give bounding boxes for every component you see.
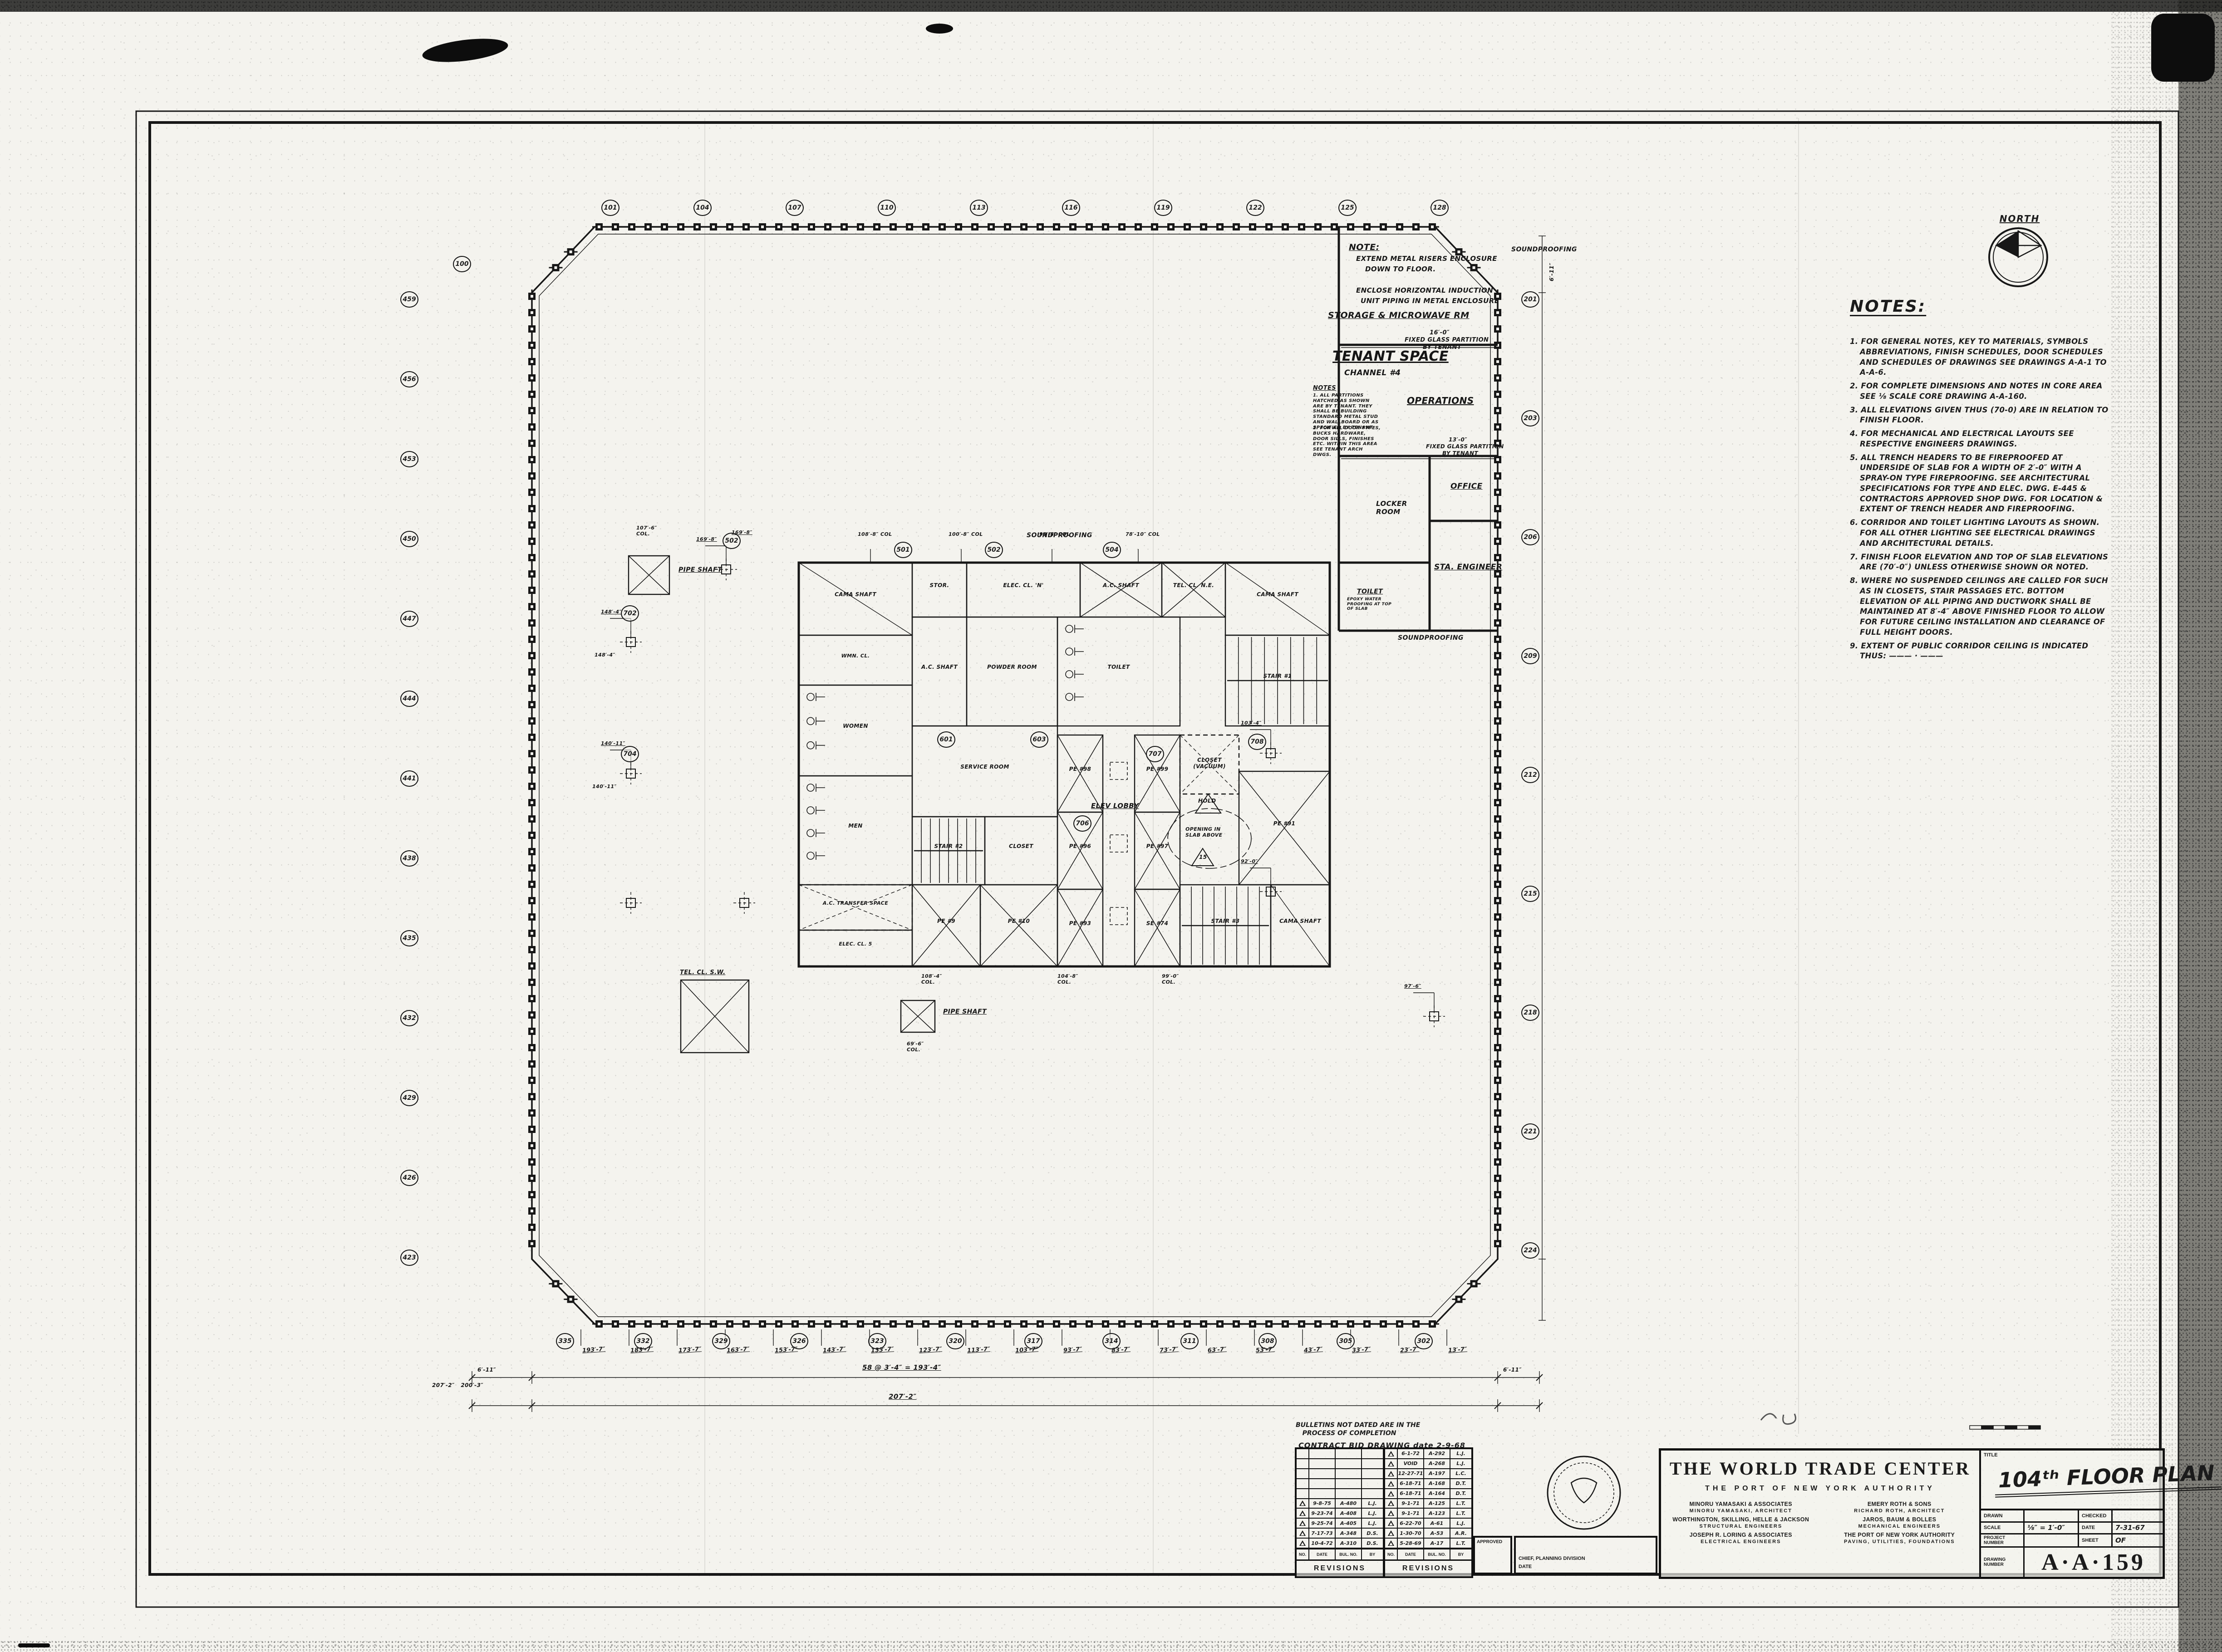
title-block: THE WORLD TRADE CENTER THE PORT OF NEW Y… [1659, 1448, 2165, 1579]
plan-annotation: 140′-11″ [592, 784, 617, 790]
rev-by: L.C. [1450, 1469, 1471, 1478]
column-core-dot [1496, 1210, 1499, 1212]
wc-fixture [807, 807, 814, 814]
room-wmn-cl- [799, 635, 912, 685]
column-core-dot [908, 225, 911, 228]
rev-no [1297, 1459, 1309, 1468]
column-core-dot [1121, 225, 1123, 228]
column-dim-label: 97′-6″ [1404, 984, 1421, 990]
project-number-value [2025, 1534, 2079, 1546]
column-core-dot [1496, 360, 1499, 363]
column-core-dot [892, 1323, 895, 1325]
room-label: PE #10 [982, 918, 1056, 924]
column-core-dot [1055, 225, 1058, 228]
column-bubble: 209 [1521, 648, 1539, 664]
column-core-dot [531, 1014, 533, 1016]
column-core-dot [941, 225, 944, 228]
firm-entry: THE PORT OF NEW YORK AUTHORITYPAVING, UT… [1824, 1532, 1975, 1544]
column-core-dot [531, 426, 533, 428]
shaft-diagonal [1225, 563, 1330, 635]
room-label: PE #98 [1059, 766, 1101, 772]
rev-no [1297, 1529, 1309, 1538]
rev-bulletin: A-480 [1336, 1499, 1362, 1508]
plan-annotation: EPOXY WATER PROOFING AT TOP OF SLAB [1347, 597, 1395, 612]
note-item: 8. WHERE NO SUSPENDED CEILINGS ARE CALLE… [1850, 576, 2111, 638]
drawn-label: DRAWN [1981, 1510, 2025, 1521]
column-core-dot [843, 225, 846, 228]
column-bubble: 335 [556, 1333, 574, 1349]
column-core-dot [531, 883, 533, 886]
column-core-dot [1104, 225, 1107, 228]
column-core-dot [1496, 997, 1499, 1000]
column-core-dot [1496, 1030, 1499, 1033]
scale-label: SCALE [1981, 1523, 2025, 1534]
column-core-dot [1496, 932, 1499, 935]
revision-row: 7-17-73A-348D.S. [1297, 1529, 1383, 1539]
dim-end-right: 6′-11″ [1503, 1367, 1522, 1373]
column-core-dot [1398, 1323, 1401, 1325]
column-core-dot [531, 769, 533, 771]
revision-triangle-icon [1388, 1510, 1394, 1516]
plan-annotation: FIXED GLASS PARTITION [1426, 443, 1504, 450]
room-label: STAIR #2 [914, 843, 983, 849]
column-core-dot [1496, 475, 1499, 477]
revision-row: 1-30-70A-53A.R. [1385, 1529, 1471, 1539]
column-core-dot [663, 225, 666, 228]
column-core-dot [554, 266, 557, 269]
column-bubble: 203 [1521, 410, 1539, 426]
column-core-dot [647, 225, 649, 228]
column-dim-label: 148′-4″ [601, 609, 622, 615]
rev-no [1385, 1469, 1398, 1478]
column-core-dot [1496, 671, 1499, 673]
rev-by [1362, 1459, 1383, 1468]
rev-no [1385, 1459, 1398, 1468]
column-core-dot [843, 1323, 846, 1325]
room-a-c-shaft [912, 617, 967, 726]
column-core-dot [728, 1323, 731, 1325]
column-core-dot [598, 1323, 600, 1325]
revision-row: 6-18-71A-168D.T. [1385, 1479, 1471, 1489]
general-notes: NOTES: 1. FOR GENERAL NOTES, KEY TO MATE… [1850, 297, 2111, 665]
column-core-dot [1457, 1298, 1460, 1301]
column-core-dot [1235, 225, 1238, 228]
chief-date-label: DATE [1519, 1564, 1653, 1569]
column-core-dot [531, 1144, 533, 1147]
note-item: 1. FOR GENERAL NOTES, KEY TO MATERIALS, … [1850, 337, 2111, 378]
wc-fixture [1066, 671, 1073, 678]
room-label: CLOSET (VACUUM) [1182, 757, 1237, 770]
rev-date: 5-28-69 [1398, 1539, 1424, 1548]
revision-row [1297, 1449, 1383, 1459]
column-core-dot [1137, 225, 1140, 228]
column-bubble: 104 [693, 200, 712, 216]
column-core-dot [1153, 225, 1156, 228]
column-bubble: 707 [1146, 746, 1164, 762]
column-core-dot [1284, 225, 1287, 228]
room-label: TOILET [1059, 664, 1178, 670]
column-core-dot [630, 1323, 633, 1325]
plan-annotation: 108′-4″ COL. [921, 974, 942, 985]
column-core-dot [1366, 225, 1368, 228]
note-item: 7. FINISH FLOOR ELEVATION AND TOP OF SLA… [1850, 552, 2111, 573]
lobby-dashed-column [1110, 907, 1127, 925]
column-core-dot [531, 377, 533, 379]
plan-annotation: FIXED GLASS PARTITION [1405, 337, 1489, 343]
rev-by: L.T. [1450, 1499, 1471, 1508]
column-core-dot [531, 1063, 533, 1065]
rev-date [1309, 1479, 1336, 1488]
plan-annotation: UNIT PIPING IN METAL ENCLOSURE [1361, 297, 1499, 305]
column-core-dot [1023, 1323, 1025, 1325]
column-core-dot [531, 1046, 533, 1049]
column-core-dot [531, 1161, 533, 1163]
column-bubble: 426 [400, 1170, 418, 1186]
revision-row: 6-1-72A-292L.J. [1385, 1449, 1471, 1459]
column-bubble: 504 [1103, 542, 1121, 558]
column-core-dot [1415, 225, 1417, 228]
rev-no [1385, 1499, 1398, 1508]
rev-by: L.J. [1450, 1459, 1471, 1468]
rev-by: D.S. [1362, 1539, 1383, 1548]
firm-name: JAROS, BAUM & BOLLES [1824, 1516, 1975, 1523]
column-bubble: 311 [1180, 1333, 1199, 1349]
column-core-dot [531, 295, 533, 298]
drawing-title-box: TITLE 104ᵗʰ FLOOR PLAN [1981, 1451, 2163, 1510]
rev-date: 1-30-70 [1398, 1529, 1424, 1538]
column-core-dot [1496, 556, 1499, 559]
column-core-dot [1349, 1323, 1352, 1325]
column-core-dot [531, 899, 533, 902]
graphic-scale-bar [1970, 1426, 1981, 1429]
column-core-dot [531, 916, 533, 918]
dim-right-end: 6′-11″ [1549, 263, 1555, 281]
column-core-dot [777, 225, 780, 228]
column-core-dot [679, 225, 682, 228]
column-dim-label: 103′-4″ [1241, 721, 1262, 726]
column-core-dot [1333, 225, 1336, 228]
column-core-dot [1496, 1046, 1499, 1049]
rev-by: A.R. [1450, 1529, 1471, 1538]
notes-title: NOTES: [1850, 297, 2111, 316]
column-core-dot [531, 1242, 533, 1245]
column-core-dot [531, 867, 533, 869]
rev-bulletin [1336, 1449, 1362, 1458]
rev-date: 9-25-74 [1309, 1519, 1336, 1528]
column-bubble: 101 [601, 200, 619, 216]
north-arrow-block: NORTH [1990, 213, 2049, 224]
approved-label: APPROVED [1477, 1539, 1502, 1544]
column-core-dot [761, 1323, 764, 1325]
room-label: PE #97 [1136, 843, 1178, 849]
column-core-dot [1268, 225, 1270, 228]
revision-triangle-icon [1388, 1491, 1394, 1496]
plan-annotation: PIPE SHAFT [943, 1008, 987, 1016]
wc-fixture [1066, 625, 1073, 632]
column-core-dot [1496, 377, 1499, 379]
column-core-dot [696, 1323, 698, 1325]
column-core-dot [712, 225, 715, 228]
column-core-dot [1473, 1282, 1475, 1285]
rev-by: L.J. [1450, 1449, 1471, 1458]
column-bubble: 459 [400, 291, 418, 308]
plan-annotation: 16′-0″ [1430, 329, 1450, 336]
rev-no [1385, 1479, 1398, 1488]
column-core-dot [973, 225, 976, 228]
column-core-dot [531, 360, 533, 363]
plan-annotation: 99′-0″ COL. [1162, 974, 1179, 985]
column-core-dot [531, 540, 533, 543]
rev-date: 9-8-75 [1309, 1499, 1336, 1508]
room-label: POWDER ROOM [968, 664, 1056, 670]
column-core-dot [1496, 981, 1499, 984]
column-core-dot [1496, 458, 1499, 461]
column-core-dot [531, 997, 533, 1000]
plan-annotation: TEL. CL. S.W. [680, 969, 725, 976]
rev-bulletin [1336, 1459, 1362, 1468]
column-core-dot [892, 225, 895, 228]
column-core-dot [531, 556, 533, 559]
column-core-dot [531, 524, 533, 526]
handwritten-smudge [1761, 1414, 1795, 1424]
revisions-caption: REVISIONS [1297, 1559, 1383, 1576]
title-field-label: TITLE [1984, 1452, 1998, 1458]
graphic-scale-bar [2017, 1426, 2029, 1429]
column-core-dot [1137, 1323, 1140, 1325]
revision-triangle-icon [1388, 1481, 1394, 1486]
column-core-dot [1170, 1323, 1172, 1325]
column-core-dot [826, 225, 829, 228]
rev-by [1362, 1449, 1383, 1458]
firm-name: WORTHINGTON, SKILLING, HELLE & JACKSON [1666, 1516, 1816, 1523]
column-core-dot [1496, 393, 1499, 396]
lobby-dashed-column [1110, 835, 1127, 852]
column-core-dot [1496, 948, 1499, 951]
plan-annotation: BY TENANT [1442, 450, 1478, 456]
column-core-dot [531, 328, 533, 330]
column-core-dot [810, 225, 813, 228]
firm-name: THE PORT OF NEW YORK AUTHORITY [1824, 1532, 1975, 1538]
room-label-elev-lobby: ELEV LOBBY [1091, 802, 1139, 810]
column-bubble: 119 [1154, 200, 1172, 216]
plan-annotation: 69′-6″ COL. [907, 1041, 924, 1053]
rev-bulletin: A-310 [1336, 1539, 1362, 1548]
rev-bulletin: A-292 [1424, 1449, 1450, 1458]
column-core-dot [924, 225, 927, 228]
plan-annotation: SOUNDPROOFING [1511, 246, 1577, 254]
plan-annotation: 13′-0″ [1449, 436, 1467, 443]
architect-seal [1548, 1456, 1620, 1529]
column-core-dot [531, 965, 533, 967]
revision-triangle-icon [1299, 1520, 1306, 1526]
rev-no [1385, 1509, 1398, 1518]
column-core-dot [531, 818, 533, 820]
dim-subtotals: 207′-2″ 200′-3″ [432, 1382, 483, 1388]
column-core-dot [630, 225, 633, 228]
firm-entry: EMERY ROTH & SONSRICHARD ROTH, ARCHITECT [1824, 1501, 1975, 1514]
column-core-dot [1496, 720, 1499, 722]
rev-by: L.T. [1450, 1539, 1471, 1548]
column-core-dot [531, 1177, 533, 1180]
room-label: PE #91 [1241, 820, 1328, 827]
revisions-table-left: 9-8-75A-480L.J.9-23-74A-408L.J.9-25-74A-… [1295, 1447, 1385, 1578]
project-title: THE WORLD TRADE CENTER [1666, 1458, 1975, 1479]
column-core-dot [1121, 1323, 1123, 1325]
column-bubble: 601 [937, 731, 955, 748]
column-core-dot [1496, 752, 1499, 755]
client-name: THE PORT OF NEW YORK AUTHORITY [1666, 1485, 1975, 1493]
rev-bulletin: A-408 [1336, 1509, 1362, 1518]
rev-by: L.J. [1362, 1509, 1383, 1518]
column-core-dot [531, 654, 533, 657]
column-bubble: 704 [621, 746, 639, 762]
column-core-dot [531, 491, 533, 494]
column-core-dot [647, 1323, 649, 1325]
column-core-dot [1496, 687, 1499, 690]
firm-role: RICHARD ROTH, ARCHITECT [1824, 1508, 1975, 1514]
column-core-dot [1496, 1128, 1499, 1131]
column-core-dot [1496, 1112, 1499, 1114]
wc-fixture [807, 693, 814, 701]
revision-row [1297, 1469, 1383, 1479]
column-core-dot [1251, 225, 1254, 228]
title-block-fields: TITLE 104ᵗʰ FLOOR PLAN DRAWN CHECKED SCA… [1981, 1451, 2163, 1577]
column-core-dot [531, 703, 533, 706]
rev-no [1385, 1529, 1398, 1538]
column-core-dot [1072, 1323, 1074, 1325]
column-bubble: 116 [1062, 200, 1080, 216]
column-dim-label: 140′-11″ [601, 741, 625, 747]
notes-list: 1. FOR GENERAL NOTES, KEY TO MATERIALS, … [1850, 337, 2111, 662]
column-core-dot [1317, 1323, 1319, 1325]
revision-triangle-icon [1388, 1461, 1394, 1466]
shaft-diagonal [1271, 885, 1330, 966]
column-core-dot [1088, 1323, 1091, 1325]
column-bubble: 215 [1521, 886, 1539, 902]
firm-entry: JAROS, BAUM & BOLLESMECHANICAL ENGINEERS [1824, 1516, 1975, 1529]
column-core-dot [1104, 1323, 1107, 1325]
column-core-dot [990, 225, 993, 228]
revision-row: 6-18-71A-164D.T. [1385, 1489, 1471, 1499]
revision-triangle-icon [1388, 1471, 1394, 1476]
column-core-dot [1496, 850, 1499, 853]
column-core-dot [1496, 573, 1499, 575]
column-core-dot [570, 250, 572, 253]
scale-value: ⅛″ = 1′-0″ [2025, 1523, 2079, 1534]
column-core-dot [531, 311, 533, 314]
column-core-dot [1496, 540, 1499, 543]
column-core-dot [1039, 225, 1042, 228]
room-label: STAIR #1 [1227, 673, 1328, 679]
column-core-dot [1496, 899, 1499, 902]
column-core-dot [531, 589, 533, 592]
revision-row [1297, 1479, 1383, 1489]
bottom-column-station: 93′-7″ [1063, 1346, 1083, 1354]
plan-annotation: 107′-6″ COL. [636, 525, 657, 537]
rev-col-label: NO. [1385, 1549, 1398, 1559]
column-bubble: 441 [400, 770, 418, 787]
revision-row: VOIDA-268L.J. [1385, 1459, 1471, 1469]
column-bubble: 224 [1521, 1242, 1539, 1259]
column-core-dot [531, 393, 533, 396]
rev-by [1362, 1489, 1383, 1498]
firm-list: MINORU YAMASAKI & ASSOCIATESMINORU YAMAS… [1666, 1501, 1975, 1544]
column-bubble: 201 [1521, 291, 1539, 308]
column-core-dot [794, 225, 796, 228]
column-core-dot [908, 1323, 911, 1325]
column-core-dot [1496, 1242, 1499, 1245]
column-core-dot [531, 475, 533, 477]
architect-seal-text-ring [1554, 1463, 1614, 1523]
rev-col-label: BY [1362, 1549, 1383, 1559]
rev-by: L.J. [1362, 1519, 1383, 1528]
plan-annotation: DOWN TO FLOOR. [1365, 265, 1436, 274]
column-core-dot [1496, 867, 1499, 869]
room-label: STAIR #3 [1182, 918, 1269, 924]
firm-role: PAVING, UTILITIES, FOUNDATIONS [1824, 1539, 1975, 1544]
column-core-dot [1496, 605, 1499, 608]
rev-no [1297, 1509, 1309, 1518]
column-core-dot [875, 1323, 878, 1325]
column-core-dot [531, 458, 533, 461]
plan-annotation: EXTEND METAL RISERS ENCLOSURE [1356, 255, 1497, 263]
room-label: A.C. TRANSFER SPACE [801, 901, 910, 907]
column-core-dot [531, 1193, 533, 1196]
plan-annotation: LOCKER ROOM [1376, 500, 1407, 516]
plan-annotation: OPERATIONS [1407, 396, 1474, 407]
column-core-dot [614, 1323, 617, 1325]
firm-role: MECHANICAL ENGINEERS [1824, 1524, 1975, 1529]
revision-triangle-icon [1388, 1500, 1394, 1506]
rev-col-label: NO. [1297, 1549, 1309, 1559]
chief-planning-box: CHIEF, PLANNING DIVISION DATE [1514, 1536, 1657, 1574]
rev-date [1309, 1469, 1336, 1478]
column-bubble: 502 [985, 542, 1003, 558]
column-core-dot [531, 1210, 533, 1212]
wc-fixture [1066, 693, 1073, 701]
rev-col-label: BY [1450, 1549, 1471, 1559]
room-label: ELEC. CL. 5 [801, 941, 910, 947]
column-bubble: 444 [400, 691, 418, 707]
rev-by: L.T. [1450, 1509, 1471, 1518]
column-bubble: 702 [621, 605, 639, 622]
column-core-dot [1496, 328, 1499, 330]
revision-triangle-icon [1299, 1510, 1306, 1516]
column-bubble: 218 [1521, 1005, 1539, 1021]
date-value: 7-31-67 [2113, 1523, 2163, 1534]
room-label: CAMA SHAFT [1273, 918, 1328, 924]
rev-col-label: BUL. NO. [1336, 1549, 1362, 1559]
rev-by: L.J. [1450, 1519, 1471, 1528]
column-bubble: 100 [453, 256, 471, 272]
rev-bulletin: A-168 [1424, 1479, 1450, 1488]
revisions-caption: REVISIONS [1385, 1559, 1471, 1576]
room-label: PE #93 [1059, 920, 1101, 926]
rev-no [1297, 1539, 1309, 1548]
north-label: NORTH [1990, 213, 2049, 224]
column-core-dot [1055, 1323, 1058, 1325]
note-item: 4. FOR MECHANICAL AND ELECTRICAL LAYOUTS… [1850, 429, 2111, 450]
plan-annotation: 15 [1199, 854, 1207, 860]
column-core-dot [1415, 1323, 1417, 1325]
column-core-dot [663, 1323, 666, 1325]
room-label: WOMEN [801, 723, 910, 729]
column-core-dot [531, 1112, 533, 1114]
room-label: PE #99 [1136, 766, 1178, 772]
column-core-dot [1473, 266, 1475, 269]
sheet-label: SHEET [2079, 1534, 2113, 1546]
column-core-dot [531, 507, 533, 510]
